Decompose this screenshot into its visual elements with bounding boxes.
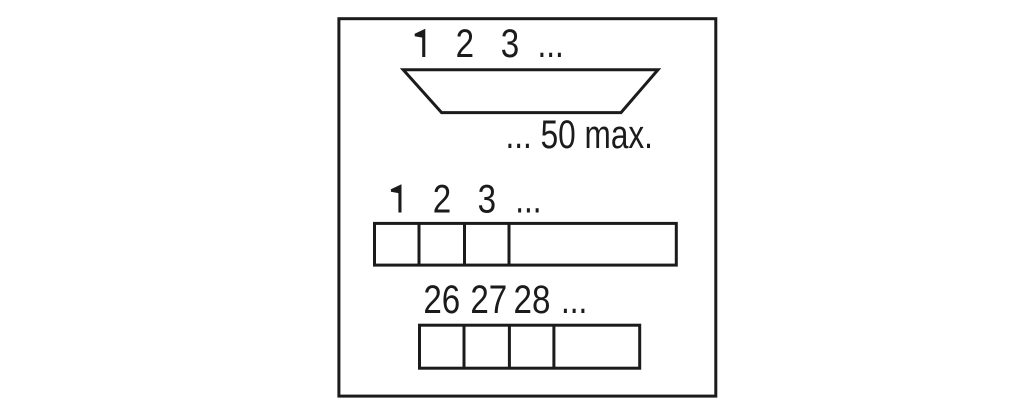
svg-text:...: ... <box>538 22 564 66</box>
svg-text:3: 3 <box>478 177 496 221</box>
svg-text:28: 28 <box>514 277 551 321</box>
svg-text:26: 26 <box>423 277 460 321</box>
svg-text:... 50 max.: ... 50 max. <box>506 112 653 156</box>
svg-text:...: ... <box>515 177 541 221</box>
svg-text:2: 2 <box>456 21 474 65</box>
svg-text:3: 3 <box>501 21 519 65</box>
svg-text:2: 2 <box>433 177 451 221</box>
svg-text:27: 27 <box>470 277 507 321</box>
svg-text:...: ... <box>561 277 587 321</box>
